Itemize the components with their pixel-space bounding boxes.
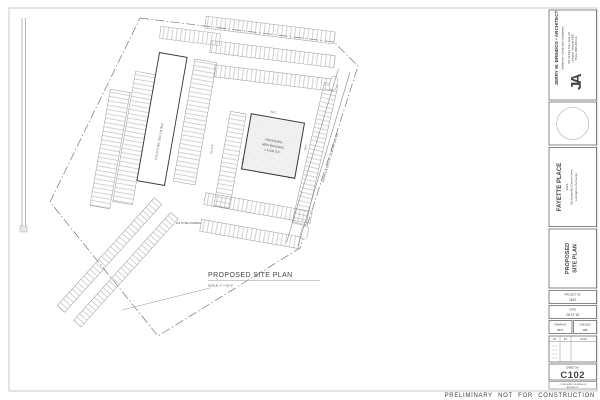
access-drive <box>122 288 210 310</box>
project-address: 1901 <box>565 183 569 190</box>
drawing-title-group: PROPOSED SITE PLAN SCALE: 1" = 30'-0" <box>208 272 320 288</box>
sheet-no-label: SHEET NO <box>566 366 579 369</box>
parking-area-southwest <box>57 198 178 327</box>
titleblock-architect-box: JERRY W. BRINDOS • ARCHITECT Architectur… <box>549 10 597 100</box>
titleblock-checked-box: CHECKED WB <box>574 321 597 334</box>
total-parking-note: 112 TOTAL PARKING <box>176 221 201 225</box>
street-left <box>20 18 27 232</box>
field-value: BDT <box>558 328 564 332</box>
preliminary-note: PRELIMINARY NOT FOR CONSTRUCTION <box>445 393 595 399</box>
project-address: Lexington, Kentucky <box>574 173 578 201</box>
field-label: DATE <box>569 309 576 312</box>
titleblock-revision-table: NO BY DATE <box>549 336 597 362</box>
dimension-label: 52.0' <box>270 111 276 115</box>
sheet-title-line: SITE PLAN <box>573 244 579 273</box>
field-label: DRAWN BY <box>554 324 567 327</box>
title-block: JERRY W. BRINDOS • ARCHITECT Architectur… <box>549 10 597 389</box>
drawing-sheet: EXISTING BUILDING PROPOSED NEW BUILDI <box>0 0 600 400</box>
field-value: WB <box>583 328 588 332</box>
revision-col-date: DATE <box>581 338 587 341</box>
titleblock-seal-box <box>549 102 597 145</box>
sheet-title-line: PROPOSED <box>565 243 571 274</box>
field-label: CHECKED <box>579 325 591 327</box>
titleblock-drawn-box: DRAWN BY BDT <box>549 321 572 334</box>
dimension-label: 55.0' <box>304 144 308 150</box>
project-address: Nicholasville Centre Drive <box>570 169 574 205</box>
drawing-scale: SCALE: 1" = 30'-0" <box>208 284 233 288</box>
project-name: FAYETTE PLACE <box>557 163 563 211</box>
field-value: 08 07 18 <box>566 313 579 317</box>
architect-name: JERRY W. BRINDOS • ARCHITECT <box>554 10 559 85</box>
revision-col-by: BY <box>564 339 568 341</box>
architect-tagline: Architecture • Construction Management <box>562 26 565 69</box>
revision-col-no: NO <box>553 339 557 341</box>
copyright-line: ARCHITECT <box>567 386 580 389</box>
proposed-building: PROPOSED NEW BUILDING ± 4,500 S.F. <box>242 114 305 179</box>
titleblock-sheetno-box: SHEET NO C102 <box>549 364 597 381</box>
sheet-no-value: C102 <box>560 370 585 381</box>
field-label: PROJECT NO <box>565 294 581 297</box>
curb-island <box>300 225 310 239</box>
dimension-label: 9.0' TYP. <box>210 144 215 155</box>
parking-area-north <box>159 16 335 91</box>
titleblock-projectno-box: PROJECT NO 1812 <box>549 291 597 304</box>
titleblock-project-box: FAYETTE PLACE 1901 Nicholasville Centre … <box>549 148 597 227</box>
parking-area-center <box>173 59 246 209</box>
site-plan-canvas: EXISTING BUILDING PROPOSED NEW BUILDI <box>0 0 600 400</box>
site-plan-drawing: EXISTING BUILDING PROPOSED NEW BUILDI <box>20 16 358 336</box>
titleblock-sheet-title-box: PROPOSED SITE PLAN <box>549 229 597 288</box>
titleblock-copyright-box: © 2018 JERRY W. BRINDOS ARCHITECT <box>549 382 597 390</box>
copyright-line: © 2018 JERRY W. BRINDOS <box>559 383 587 386</box>
drawing-title: PROPOSED SITE PLAN <box>208 272 293 279</box>
titleblock-date-box: DATE 08 07 18 <box>549 306 597 319</box>
field-value: 1812 <box>569 298 576 302</box>
architect-phone: Phone: (859) 266-1131 <box>575 35 578 60</box>
